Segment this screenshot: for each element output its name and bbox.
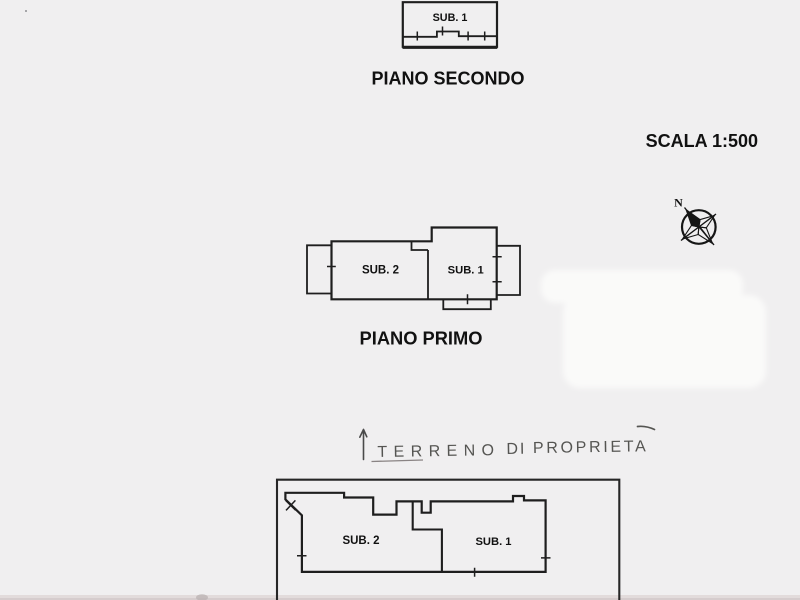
svg-text:SUB. 2: SUB. 2 xyxy=(342,535,379,547)
svg-text:SUB. 1: SUB. 1 xyxy=(433,12,468,24)
svg-text:PIANO PRIMO: PIANO PRIMO xyxy=(360,328,483,349)
svg-text:SUB. 1: SUB. 1 xyxy=(475,536,511,548)
svg-text:SCALA 1:500: SCALA 1:500 xyxy=(646,131,758,151)
svg-text:SUB. 2: SUB. 2 xyxy=(362,265,399,277)
svg-text:TERRENO: TERRENO xyxy=(377,442,500,461)
svg-text:SUB. 1: SUB. 1 xyxy=(448,265,484,277)
svg-text:PROPRIETA: PROPRIETA xyxy=(533,438,649,457)
svg-text:N: N xyxy=(674,196,683,210)
svg-text:PIANO SECONDO: PIANO SECONDO xyxy=(371,68,524,88)
svg-text:DI: DI xyxy=(506,441,526,458)
